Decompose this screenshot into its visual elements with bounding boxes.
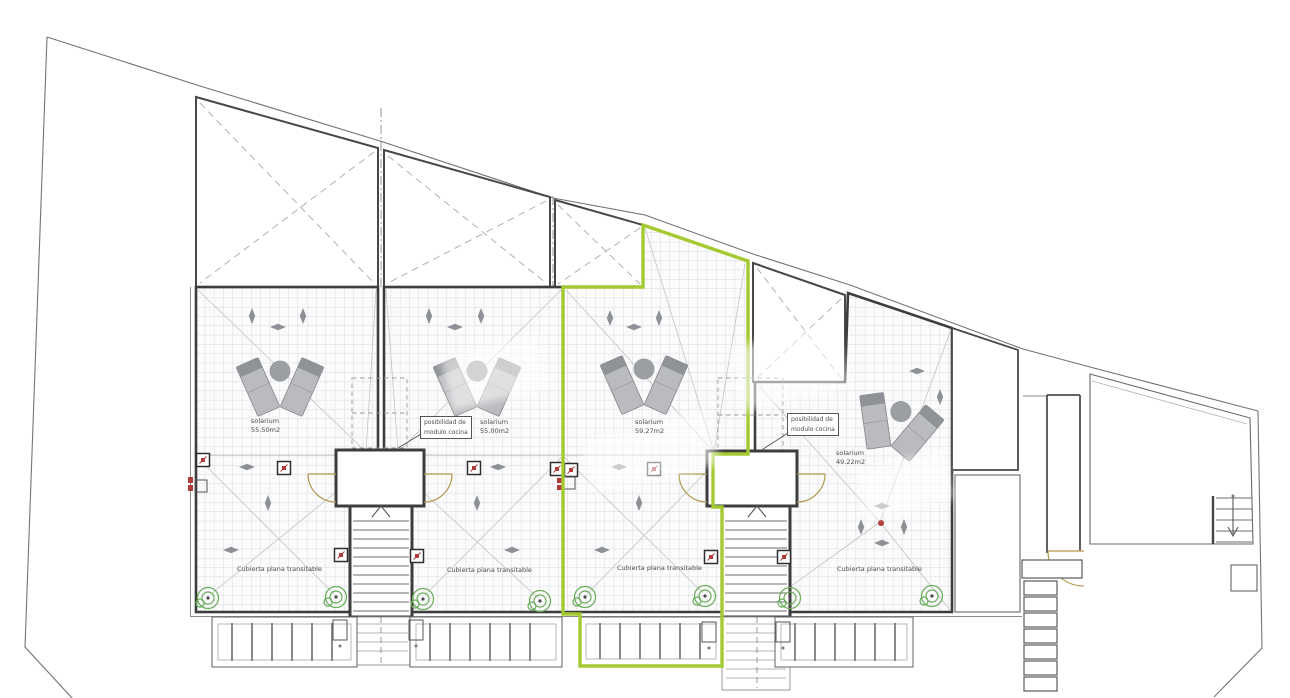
pergolas: [212, 617, 913, 667]
center-drain-point: [878, 520, 884, 526]
roof-inset-panel: [952, 328, 1018, 470]
stair-bulkhead-2: [707, 451, 797, 506]
roof-label-unit3: Cubierta plana transitable: [617, 564, 702, 573]
roof-label-unit1: Cubierta plana transitable: [237, 565, 322, 574]
scupper-icon: [778, 551, 791, 564]
roof-inset-lower: [955, 475, 1020, 612]
solarium-label-unit1: solarium 55.50m2: [251, 417, 280, 436]
solarium-name: solarium: [480, 418, 509, 427]
scupper-icon: [468, 462, 481, 475]
solarium-label-unit2: solarium 55.00m2: [480, 418, 509, 437]
scupper-icon: [335, 549, 348, 562]
solarium-name: solarium: [836, 449, 865, 458]
solarium-label-unit3: solarium 59.27m2: [635, 418, 664, 437]
scupper-icon: [705, 551, 718, 564]
scupper-icon: [197, 454, 210, 467]
pergola-unit4: [775, 617, 913, 667]
stair-shaft-1: [350, 506, 412, 617]
pergola-unit3: [580, 617, 722, 666]
roof-label-unit4: Cubierta plana transitable: [837, 565, 922, 574]
solarium-label-unit4: solarium 49.22m2: [836, 449, 865, 468]
solarium-name: solarium: [635, 418, 664, 427]
solarium-name: solarium: [251, 417, 280, 426]
scupper-icon: [411, 550, 424, 563]
pergola-unit1: [212, 617, 357, 667]
kitchen-note-1: posibilidad de modulo cocina: [420, 416, 472, 439]
roof-plan-page: { "plan": { "units": [ {"name": "solariu…: [0, 0, 1290, 698]
scupper-icon: [565, 464, 578, 477]
kitchen-note-2: posibilidad de modulo cocina: [787, 413, 839, 436]
roof-panel-2: [384, 150, 550, 287]
solarium-area: 59.27m2: [635, 427, 664, 436]
stair-bulkhead-1: [336, 450, 424, 506]
scupper-icon: [278, 462, 291, 475]
floor-plan-drawing: [0, 0, 1290, 698]
stair-landing: [1022, 560, 1082, 578]
solarium-area: 55.00m2: [480, 427, 509, 436]
east-terrace: [1090, 374, 1257, 591]
solarium-area: 55.50m2: [251, 426, 280, 435]
exterior-stairs-down: [1024, 581, 1057, 691]
side-corridor: [1022, 395, 1084, 691]
roof-label-unit2: Cubierta plana transitable: [447, 566, 532, 575]
solarium-area: 49.22m2: [836, 458, 865, 467]
pergola-unit2: [410, 617, 562, 667]
service-box: [1231, 565, 1257, 591]
scupper-icon: [648, 463, 661, 476]
